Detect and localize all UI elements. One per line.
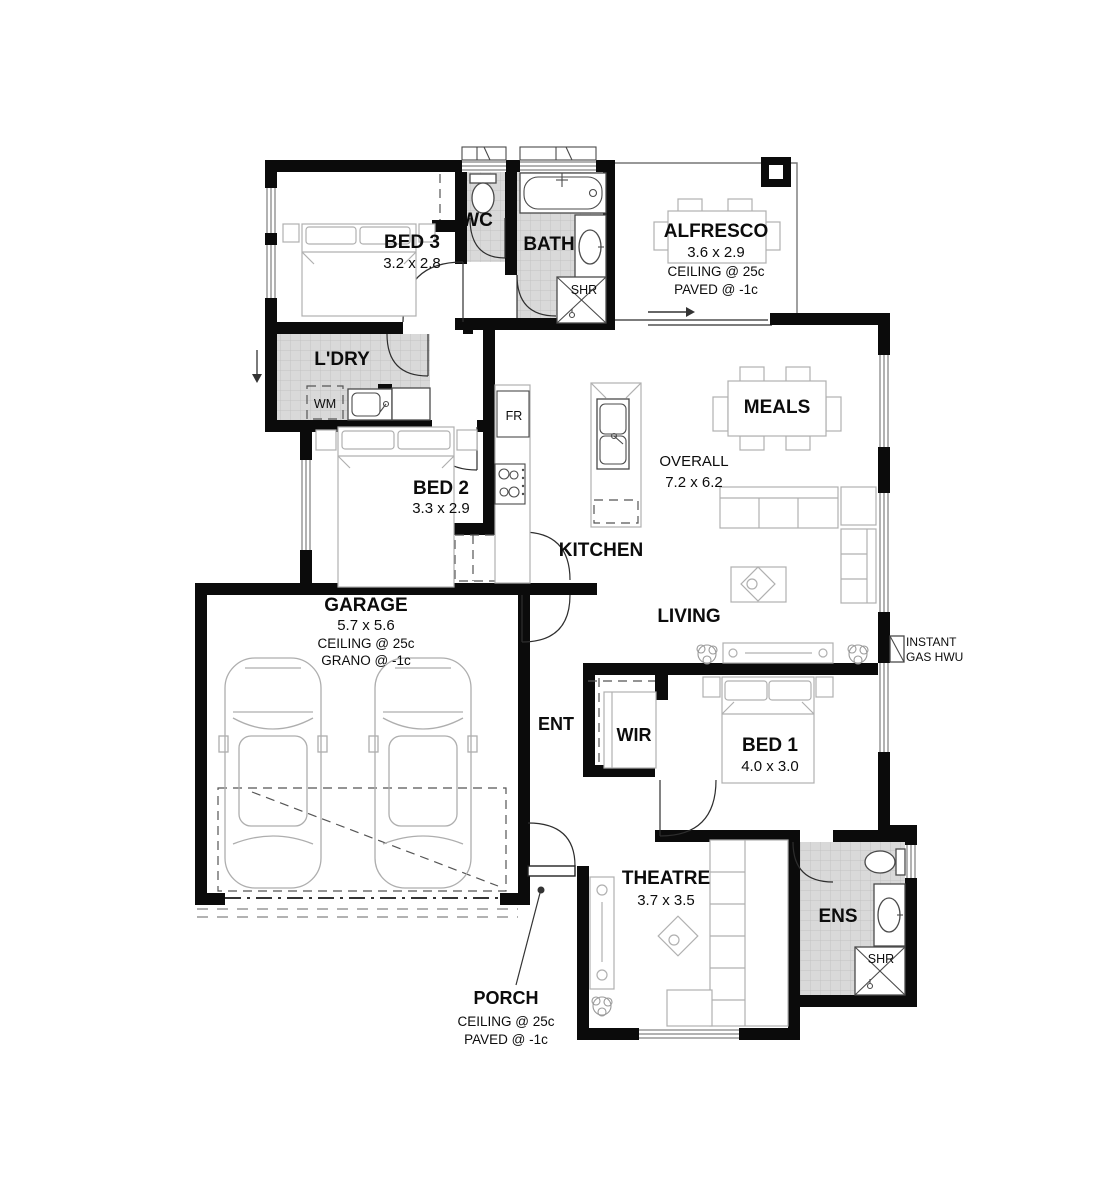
- ldry-label: L'DRY: [314, 349, 370, 370]
- meals-window: [878, 355, 890, 447]
- kitchen-label: KITCHEN: [559, 540, 643, 561]
- car-left: [219, 658, 327, 888]
- bath-vanity: [575, 215, 606, 279]
- ldry-trough: [348, 389, 392, 420]
- overall-dims: 7.2 x 6.2: [665, 474, 723, 491]
- theatre-window: [639, 1028, 739, 1040]
- bath-label: BATH: [523, 234, 574, 255]
- car-right: [369, 658, 477, 888]
- bath-shr-label: SHR: [571, 283, 597, 297]
- theatre-media-unit: [590, 877, 614, 989]
- living-label: LIVING: [657, 606, 720, 627]
- wc-toilet: [470, 174, 496, 213]
- plant-living-right: [848, 645, 868, 664]
- hwu-label-line1: INSTANT: [906, 635, 957, 649]
- meals-label: MEALS: [744, 397, 811, 418]
- coffee-table: [731, 567, 786, 602]
- bath-window: [520, 147, 596, 172]
- living-window: [878, 493, 890, 612]
- ens-toilet: [865, 849, 905, 875]
- alfresco-note2: PAVED @ -1c: [674, 282, 758, 297]
- bed1-dims: 4.0 x 3.0: [741, 758, 799, 775]
- wc-label: WC: [461, 210, 493, 231]
- tv-unit: [723, 643, 833, 663]
- ens-vanity: [874, 884, 905, 946]
- bed3-dims: 3.2 x 2.8: [383, 255, 441, 272]
- bed1-label: BED 1: [742, 735, 798, 756]
- ldry-drain-arrow: [252, 350, 262, 383]
- alfresco-dims: 3.6 x 2.9: [687, 244, 745, 261]
- alfresco-entry-arrow: [648, 307, 695, 317]
- bed2-label: BED 2: [413, 478, 469, 499]
- overall-label: OVERALL: [659, 453, 728, 470]
- wc-window: [462, 147, 506, 172]
- garage-dims: 5.7 x 5.6: [337, 617, 395, 634]
- garage-note2: GRANO @ -1c: [321, 653, 411, 668]
- bed2-window: [300, 460, 312, 550]
- wir-label: WIR: [617, 725, 652, 745]
- porch-note2: PAVED @ -1c: [464, 1032, 548, 1047]
- alfresco-note1: CEILING @ 25c: [668, 264, 765, 279]
- island-sink: [591, 383, 641, 527]
- bathtub: [520, 173, 606, 213]
- theatre-label: THEATRE: [622, 868, 710, 889]
- porch-note1: CEILING @ 25c: [458, 1014, 555, 1029]
- porch-label: PORCH: [473, 988, 538, 1008]
- ens-label: ENS: [818, 906, 857, 927]
- floor-plan-drawing: BED 3 3.2 x 2.8 WC BATH SHR ALFRESCO 3.6…: [0, 0, 1098, 1200]
- garage-note1: CEILING @ 25c: [318, 636, 415, 651]
- bed2-dims: 3.3 x 2.9: [412, 500, 470, 517]
- alfresco-label: ALFRESCO: [664, 221, 769, 242]
- linen-cupboard: [392, 388, 430, 420]
- cars: [219, 658, 477, 888]
- floor-plan-page: BED 3 3.2 x 2.8 WC BATH SHR ALFRESCO 3.6…: [0, 0, 1098, 1200]
- garage-label: GARAGE: [324, 595, 407, 616]
- ent-label: ENT: [538, 714, 574, 734]
- bed3-label: BED 3: [384, 232, 440, 253]
- hwu-unit: [890, 636, 904, 662]
- fr-label: FR: [506, 409, 523, 423]
- hwu-label-line2: GAS HWU: [906, 650, 963, 664]
- theatre-dims: 3.7 x 3.5: [637, 892, 695, 909]
- ens-window: [905, 845, 917, 878]
- bed1-window: [878, 663, 890, 752]
- plant-theatre: [592, 997, 612, 1016]
- plant-living-left: [697, 645, 717, 664]
- theatre-ottoman: [658, 916, 698, 956]
- wm-label: WM: [314, 397, 336, 411]
- ens-shr-label: SHR: [868, 952, 894, 966]
